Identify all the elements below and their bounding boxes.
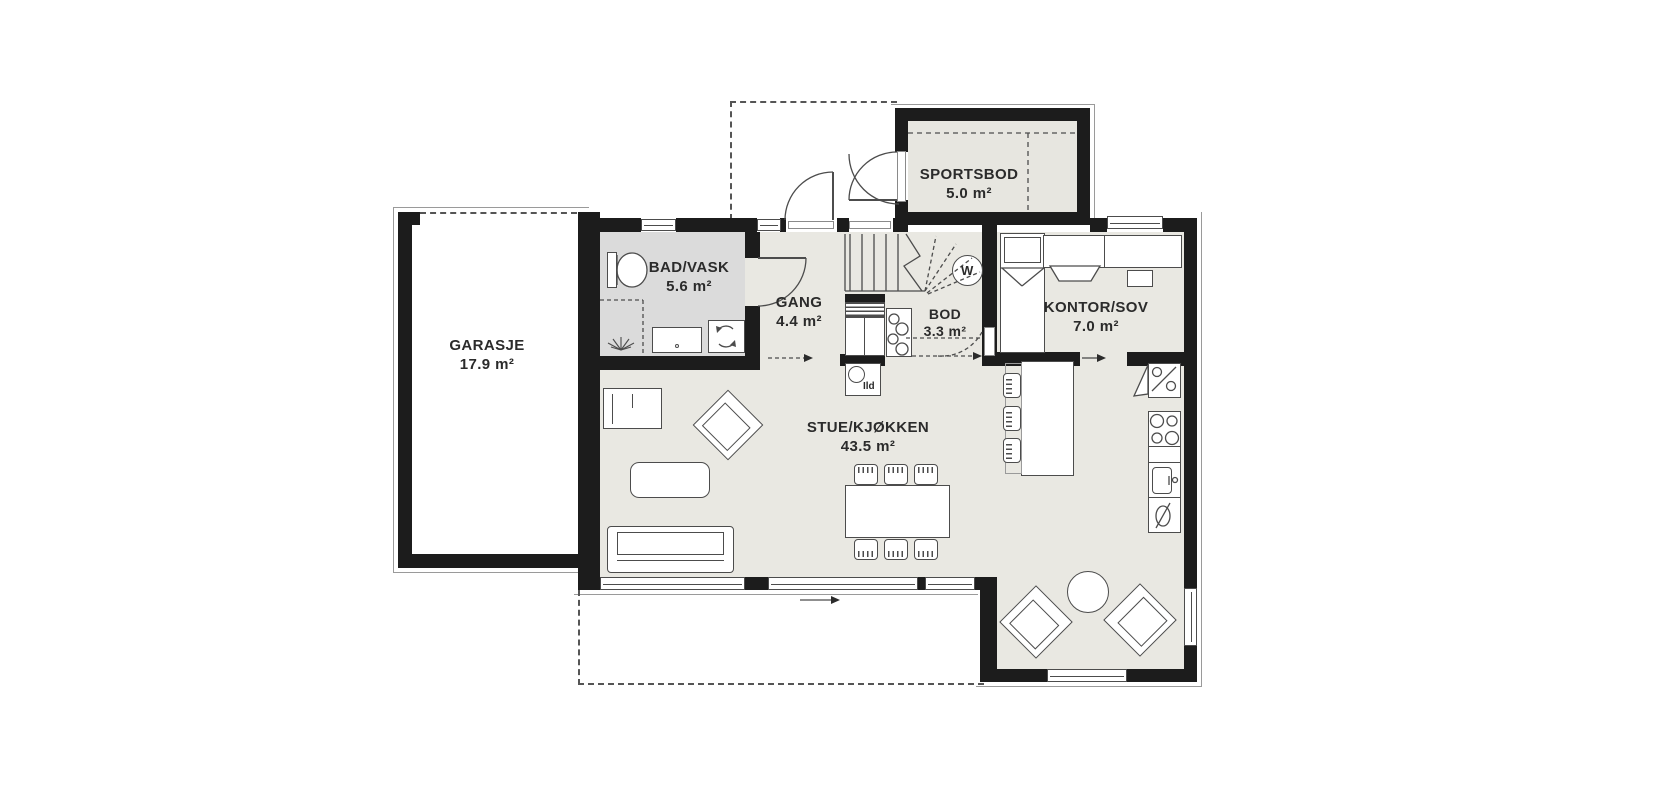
dining-table [845,485,950,538]
exterior-line-sportsbod-right [1094,104,1095,226]
wall-alcove-bottom-2 [1127,669,1197,682]
desk-shelf [1127,270,1153,287]
wall-garage-left [398,212,412,568]
room-name: GANG [776,293,823,312]
kitchen-island [1021,361,1074,476]
wall-top-pier [837,218,849,232]
hall-cabinet-hatched [845,302,885,317]
washing-machine [708,320,745,353]
wall-top-2 [676,218,757,232]
room-name: BOD [924,306,967,323]
entrance-door-sill [788,221,834,229]
wall-closet-top [845,294,885,302]
sofa [607,526,734,573]
wall-bottom-pier [745,577,768,590]
kitchen-sink [1148,462,1181,498]
wall-sportsbod-right [1077,108,1090,225]
exterior-line-garage-top [393,207,589,208]
wall-alcove-left [980,577,997,682]
stair-hall-door-sill [849,221,891,229]
wall-top-right-1 [1090,218,1107,232]
room-area: 3.3 m² [924,323,967,340]
room-label-kontor-sov: KONTOR/SOV 7.0 m² [1044,298,1149,336]
dining-chair [884,539,908,560]
sportsbod-door-leaf [897,151,906,202]
exterior-line-garage-bottom [393,572,589,573]
window-living-bottom [925,577,975,590]
dishwasher [1148,497,1181,533]
room-area: 17.9 m² [449,355,524,374]
window-bathroom [641,219,676,231]
room-label-gang: GANG 4.4 m² [776,293,823,331]
wall-right-upper [1184,218,1197,588]
round-side-table [1067,571,1109,613]
fireplace-label: Ild [863,381,875,392]
toilet-tank [607,252,617,288]
room-label-sportsbod: SPORTSBOD 5.0 m² [920,165,1019,203]
tech-cabinet [886,308,912,357]
bathroom-vanity [652,327,702,353]
wall-house-left [578,212,600,590]
room-name: SPORTSBOD [920,165,1019,184]
room-label-bad-vask: BAD/VASK 5.6 m² [649,258,729,296]
exterior-line-sportsbod-top [891,104,1095,105]
room-area: 5.6 m² [649,277,729,296]
room-area: 7.0 m² [1044,317,1149,336]
sliding-door-terrace-right [768,577,918,590]
window-alcove-right [1184,588,1197,646]
kitchen-counter [1148,446,1181,463]
wall-alcove-bottom-1 [980,669,1047,682]
wall-bath-right-upper [745,232,760,258]
room-area: 5.0 m² [920,184,1019,203]
wall-bottom-1 [578,577,600,590]
hall-closet-door-left [845,317,865,356]
fridge [1148,363,1181,398]
dining-chair [914,539,938,560]
bar-stool [1003,373,1021,398]
exterior-line-alcove-bottom [976,686,1202,687]
garage-door-dashed [420,212,577,216]
bar-stool [1003,406,1021,431]
bed-pillow [1004,237,1041,263]
dining-chair [884,464,908,485]
room-name: BAD/VASK [649,258,729,277]
porch-roof-outline [730,101,897,220]
sliding-door-terrace-left [600,577,745,590]
pocket-door-rail-kontor [1030,355,1080,360]
window-alcove-bottom [1047,669,1127,682]
exterior-line-garage-left [393,207,394,573]
room-label-garasje: GARASJE 17.9 m² [449,336,524,374]
armchair-left [603,388,662,429]
dining-chair [854,464,878,485]
room-area: 43.5 m² [807,437,929,456]
bod-door-leaf [984,327,995,356]
exterior-line-right [1201,212,1202,686]
room-name: GARASJE [449,336,524,355]
wall-bath-bottom [598,356,760,370]
window-hall-small [757,219,781,231]
wall-garage-bottom [398,554,583,568]
hall-closet-door-right [864,317,885,356]
floor-plan: GARASJE 17.9 m² SPORTSBOD 5.0 m² BAD/VAS… [0,0,1670,800]
wall-top-1 [578,218,641,232]
dining-chair [914,464,938,485]
coffee-table [630,462,710,498]
room-area: 4.4 m² [776,312,823,331]
terrace-outline [578,590,984,685]
wall-bath-right-lower [745,306,760,356]
desk [1043,235,1182,268]
wall-sportsbod-top [895,108,1090,121]
wall-sportsbod-left-upper [895,108,908,152]
cooktop [1148,411,1181,447]
dining-chair [854,539,878,560]
bar-stool [1003,438,1021,463]
room-name: KONTOR/SOV [1044,298,1149,317]
window-kontor [1107,216,1163,229]
room-name: STUE/KJØKKEN [807,418,929,437]
water-heater-label: W [961,263,973,278]
room-label-stue-kjokken: STUE/KJØKKEN 43.5 m² [807,418,929,456]
room-label-bod: BOD 3.3 m² [924,306,967,340]
